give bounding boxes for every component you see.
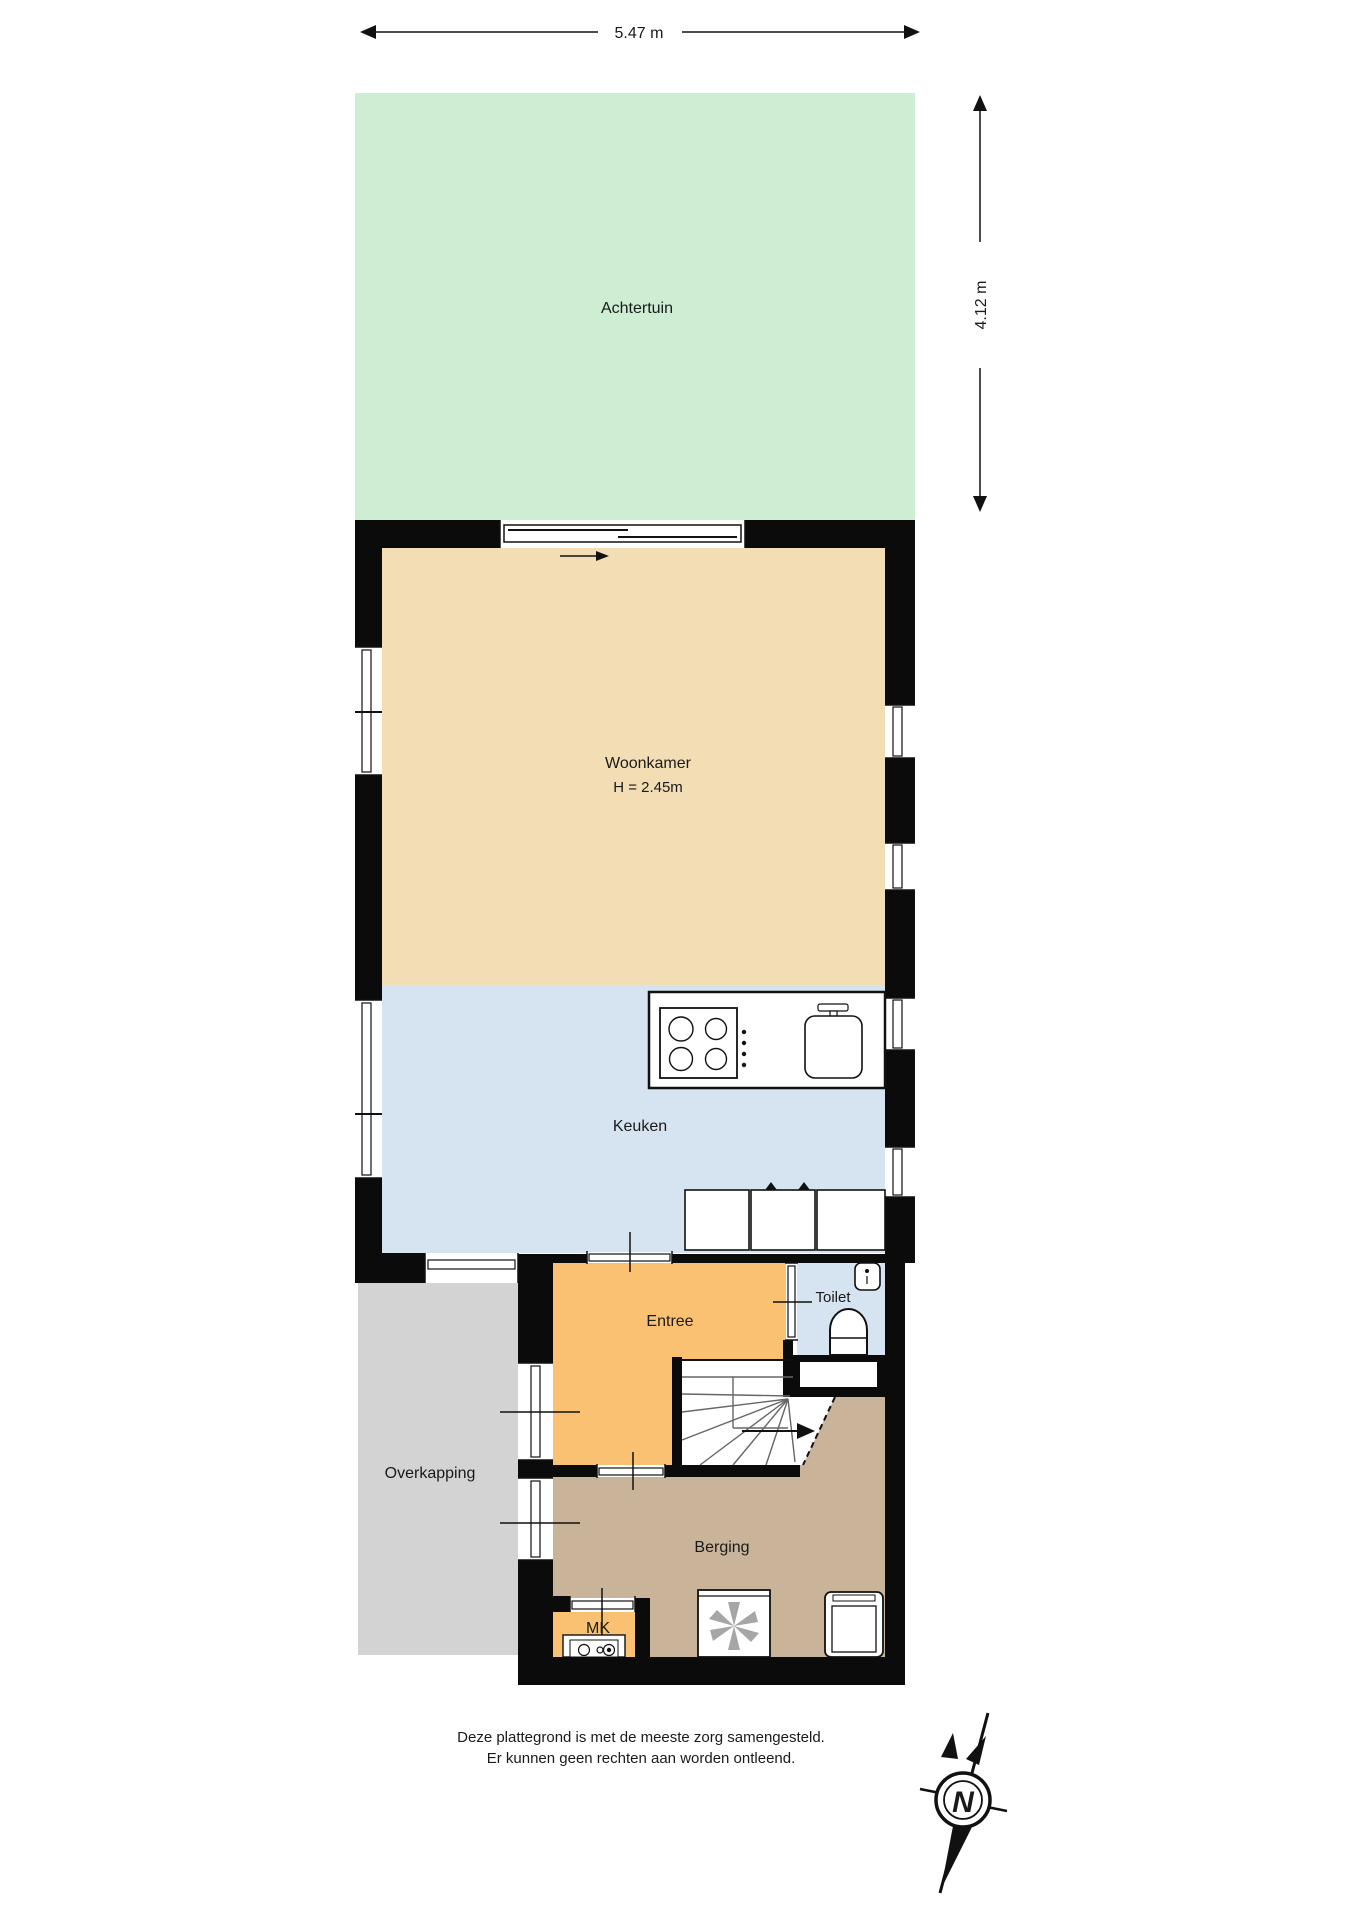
compass-north-label: N	[952, 1786, 975, 1819]
dimension-height-label: 4.12 m	[973, 281, 990, 330]
label-keuken: Keuken	[613, 1118, 667, 1135]
disclaimer-line2: Er kunnen geen rechten aan worden ontlee…	[487, 1750, 796, 1767]
hand-basin-icon	[855, 1263, 880, 1290]
floorplan-page: 5.47 m 4.12 m	[0, 0, 1358, 1920]
ventilation-fan-icon	[698, 1590, 770, 1657]
arrowhead-left-icon	[360, 25, 376, 39]
toilet-niche	[800, 1362, 877, 1387]
toilet-bowl-icon	[830, 1309, 867, 1355]
label-woonkamer: Woonkamer	[605, 755, 692, 772]
label-achtertuin: Achtertuin	[601, 300, 673, 317]
meter-box-icon	[563, 1635, 625, 1657]
label-overkapping: Overkapping	[385, 1465, 476, 1482]
arrowhead-up-icon	[973, 95, 987, 111]
arrowhead-right-icon	[904, 25, 920, 39]
washing-machine-icon	[825, 1592, 883, 1657]
dimension-width-label: 5.47 m	[615, 25, 664, 42]
label-woonkamer-height: H = 2.45m	[613, 779, 683, 796]
label-toilet: Toilet	[815, 1289, 851, 1306]
disclaimer-line1: Deze plattegrond is met de meeste zorg s…	[457, 1729, 825, 1746]
label-meterkast: MK	[586, 1620, 610, 1637]
arrowhead-down-icon	[973, 496, 987, 512]
kitchen-cabinets	[685, 1182, 885, 1250]
label-berging: Berging	[694, 1539, 749, 1556]
floorplan-drawing: 5.47 m 4.12 m	[0, 0, 1358, 1920]
label-entree: Entree	[646, 1313, 693, 1330]
compass-icon: N	[920, 1713, 1007, 1893]
